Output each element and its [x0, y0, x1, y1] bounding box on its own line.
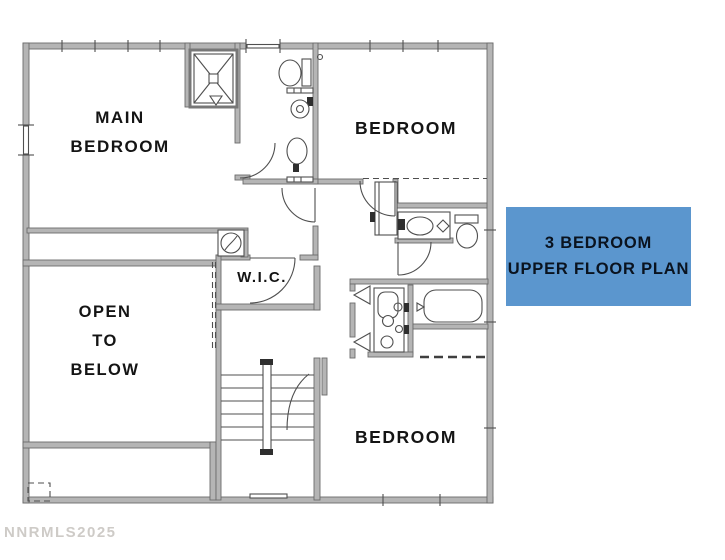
bedroom-lower-right-label: BEDROOM	[355, 427, 457, 447]
bathtub-icon	[417, 290, 482, 322]
open-to-below-label-line1: OPEN	[79, 303, 132, 321]
door-swing-icon	[354, 286, 370, 304]
main-bedroom-label-line1: MAIN	[95, 108, 144, 127]
main-bedroom-label-line2: BEDROOM	[70, 137, 169, 156]
bedroom-upper-right-label: BEDROOM	[355, 118, 457, 138]
door-swing-icon	[354, 333, 370, 351]
title-card: 3 BEDROOM UPPER FLOOR PLAN	[506, 207, 691, 306]
bottom-door-notch	[250, 494, 287, 498]
ensuite-bath-fixtures	[354, 286, 482, 352]
title-card-line1: 3 BEDROOM	[545, 234, 652, 253]
listing-image: MAIN BEDROOM BEDROOM W.I.C. OPEN TO BELO…	[0, 0, 725, 560]
watermark: NNRMLS2025	[4, 524, 117, 541]
sink-icon	[407, 217, 433, 235]
staircase-icon	[221, 359, 314, 455]
corridor-fixture-icon	[218, 230, 244, 256]
wic-label: W.I.C.	[237, 269, 287, 286]
open-to-below-label-line3: BELOW	[71, 361, 140, 379]
sink-icon	[291, 100, 309, 118]
toilet-icon	[279, 59, 311, 86]
open-to-below-label-line2: TO	[92, 332, 118, 350]
shower-icon	[190, 50, 237, 107]
toilet-icon	[455, 215, 478, 248]
title-card-line2: UPPER FLOOR PLAN	[508, 260, 689, 279]
sink-icon	[287, 138, 307, 164]
